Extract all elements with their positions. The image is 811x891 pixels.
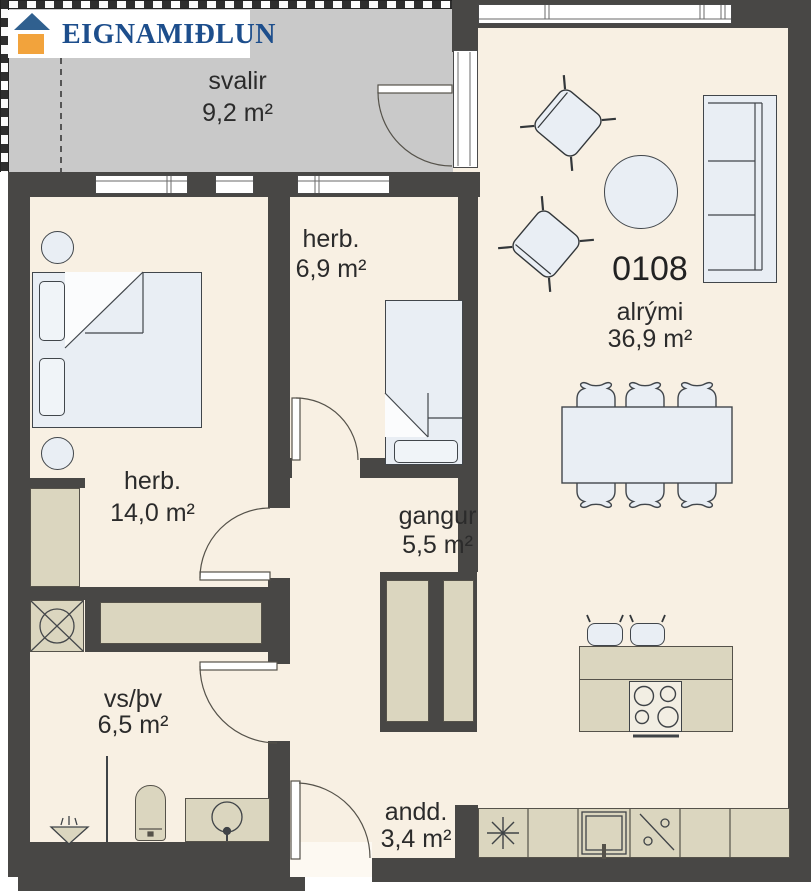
dining-table <box>562 407 732 483</box>
label-vspv: vs/þv <box>63 686 203 712</box>
unit-number: 0108 <box>580 250 720 289</box>
label-herb-small: herb. <box>270 226 392 252</box>
area-herb-large: 14,0 m² <box>80 500 225 526</box>
armchair-1 <box>520 75 616 171</box>
floor-drain-icon <box>51 816 88 844</box>
house-icon <box>12 11 56 57</box>
area-svalir: 9,2 m² <box>150 100 325 126</box>
counter-dividers <box>528 808 730 858</box>
label-alrymi: alrými <box>580 299 720 325</box>
double-bed-fold <box>65 272 143 348</box>
area-vspv: 6,5 m² <box>63 712 203 738</box>
area-herb-small: 6,9 m² <box>270 256 392 282</box>
sofa-lines <box>708 103 762 270</box>
label-gangur: gangur <box>365 503 510 529</box>
label-andd: andd. <box>346 799 486 825</box>
doors <box>200 85 452 859</box>
kitchen-sink-icon <box>582 812 626 859</box>
label-herb-large: herb. <box>80 468 225 494</box>
floor-plan: svalir 9,2 m² herb. 6,9 m² 0108 alrými 3… <box>0 0 811 891</box>
dishwasher-icon <box>640 814 674 850</box>
agency-logo-text: EIGNAMIÐLUN <box>62 19 276 51</box>
area-andd: 3,4 m² <box>346 826 486 852</box>
bath-sink-icon <box>212 802 242 841</box>
agency-logo: EIGNAMIÐLUN <box>8 10 250 58</box>
toilet-detail <box>139 829 162 836</box>
washer-icon <box>31 601 83 651</box>
plan-lineart <box>0 0 811 891</box>
area-alrymi: 36,9 m² <box>580 326 720 352</box>
stove-burners <box>633 687 679 737</box>
stool-hooks <box>587 615 665 622</box>
appliance-asterisk-icon <box>487 817 519 849</box>
area-gangur: 5,5 m² <box>365 532 510 558</box>
label-svalir: svalir <box>150 68 325 94</box>
single-bed-fold <box>385 393 463 437</box>
